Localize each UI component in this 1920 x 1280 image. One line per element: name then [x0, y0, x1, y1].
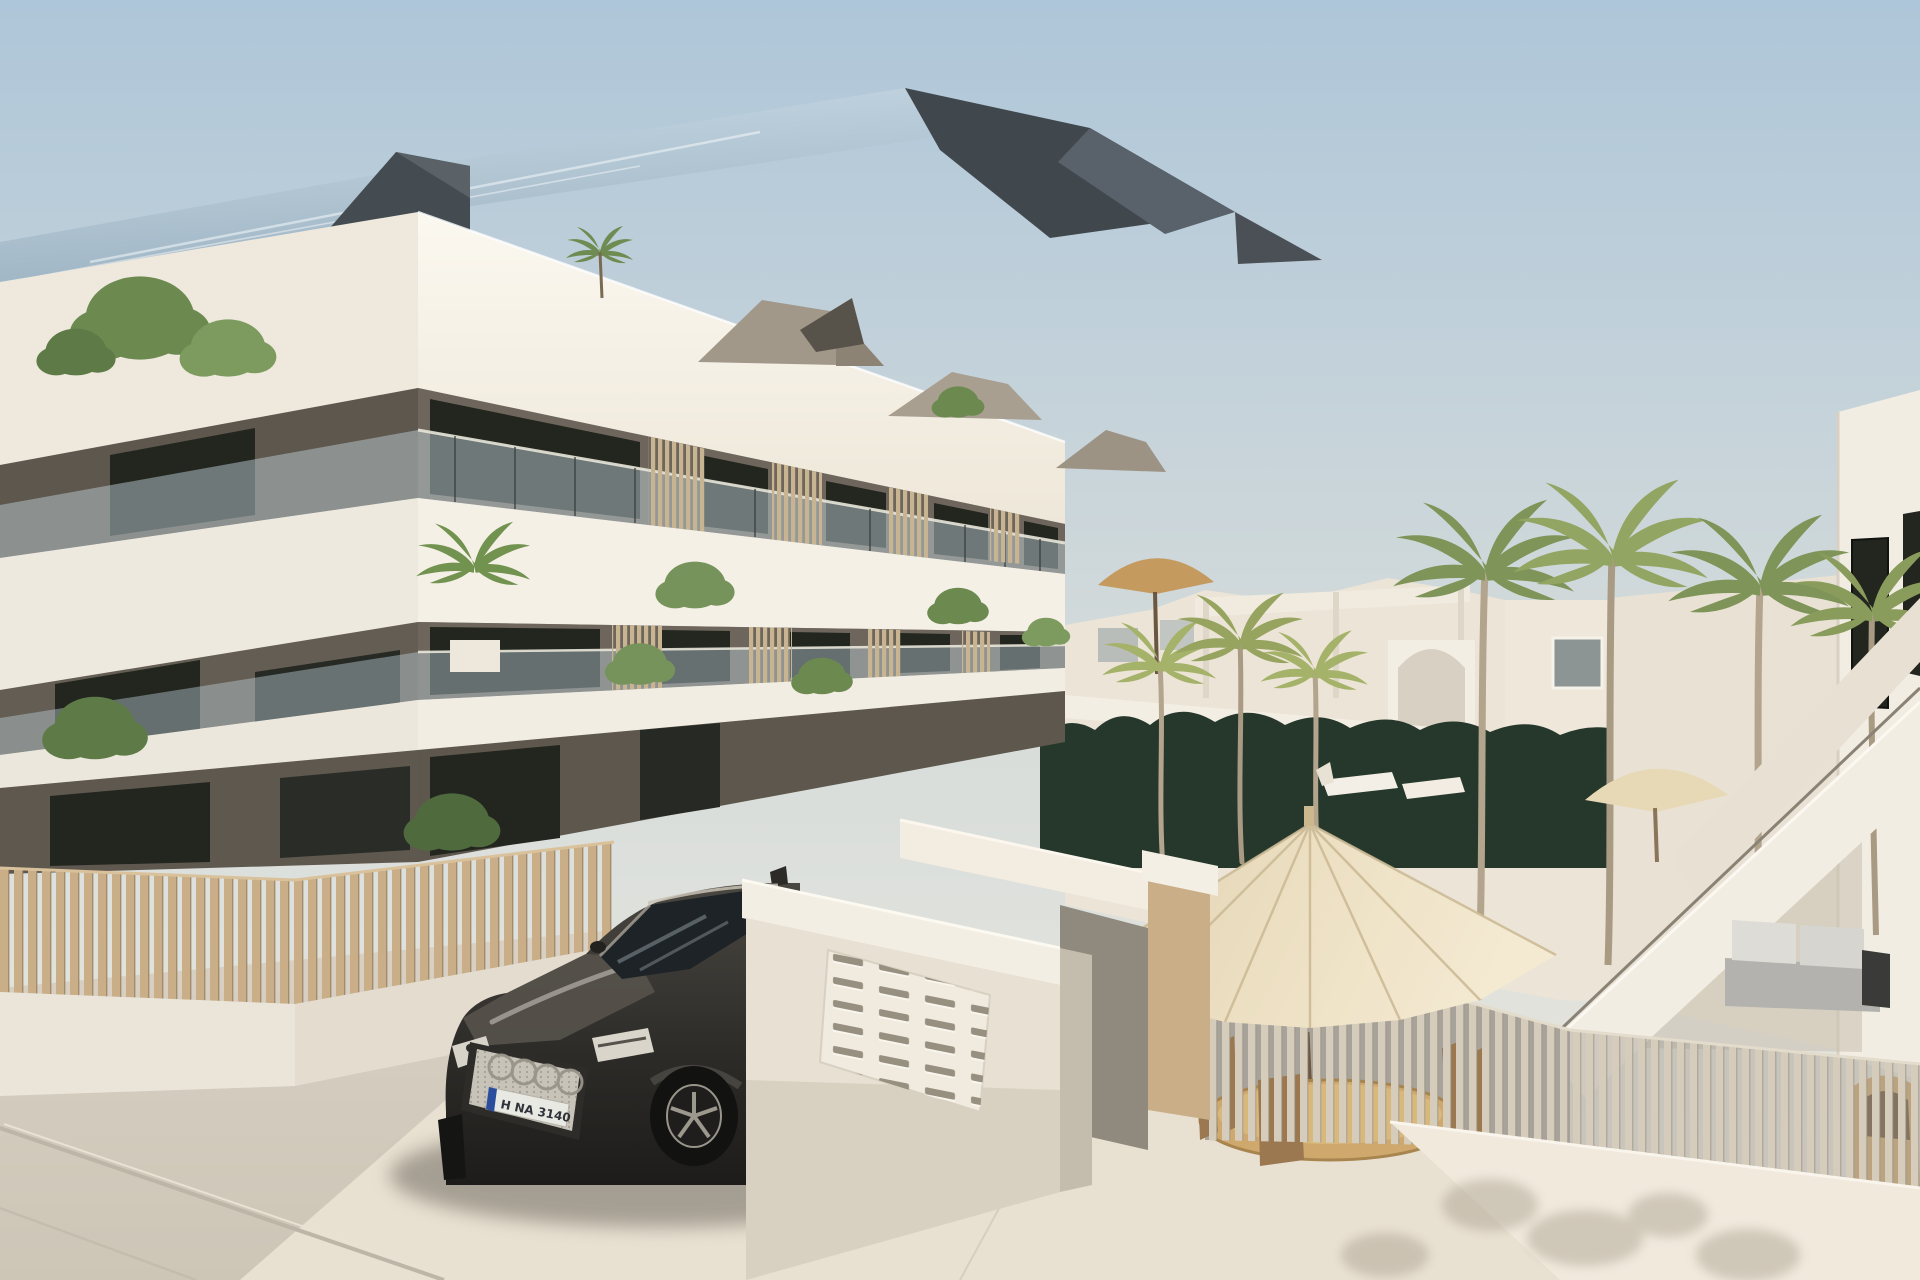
- privacy-slat-screen: [888, 487, 928, 558]
- render-canvas: H NA 3140: [0, 0, 1920, 1280]
- umbrella-finial: [1304, 806, 1314, 826]
- sofa-armrest: [1862, 950, 1890, 1008]
- pergola-post: [1203, 600, 1209, 698]
- fence-base-wall: [0, 992, 295, 1096]
- glass-door: [640, 723, 720, 820]
- glass-door: [50, 782, 210, 866]
- pool-house-window: [1553, 638, 1602, 688]
- gate-post-tan: [1148, 862, 1210, 1120]
- privacy-slat-screen: [648, 436, 706, 532]
- privacy-slat-screen: [962, 631, 990, 673]
- privacy-slat-screen: [772, 462, 822, 545]
- side-mirror: [590, 941, 606, 953]
- privacy-slat-screen: [868, 629, 902, 678]
- mailbox-wall-side: [1060, 948, 1092, 1192]
- planter: [450, 640, 500, 672]
- slat-fence: [0, 868, 295, 1004]
- privacy-slat-screen: [990, 508, 1022, 564]
- glass-door: [280, 766, 410, 858]
- architectural-render: H NA 3140: [0, 0, 1920, 1280]
- privacy-slat-screen: [748, 627, 792, 685]
